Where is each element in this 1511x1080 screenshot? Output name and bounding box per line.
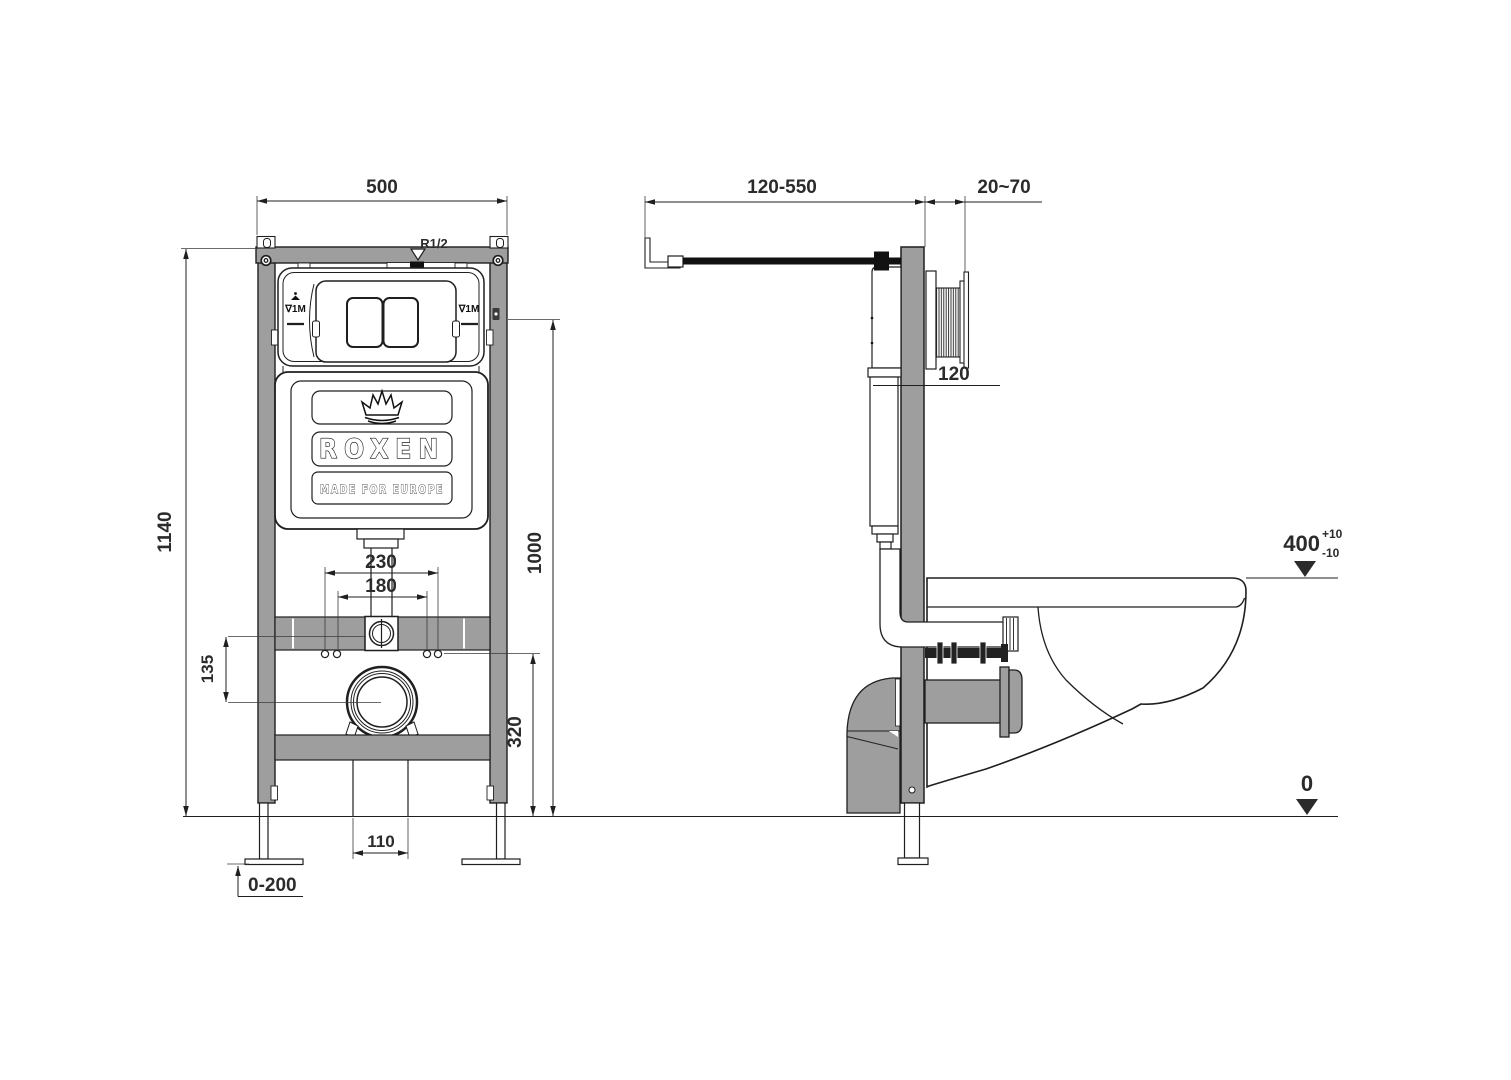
flush-button-small: [384, 298, 419, 347]
level-marker-400: 400 +10 -10: [1246, 527, 1343, 578]
brand-tagline-text: MADE FOR EUROPE: [320, 483, 444, 497]
foot-left: [245, 803, 303, 865]
meter-mark-label: ∇1M: [284, 304, 306, 315]
level-triangle-icon: [1294, 561, 1316, 577]
level-marker-0: 0: [1296, 771, 1318, 815]
technical-drawing-canvas: ∇1M ∇1M ROXEN MADE FOR EUROPE: [0, 0, 1511, 1080]
dim-label: 110: [367, 832, 394, 851]
frame-rail-side: [901, 247, 924, 803]
fixing-stud-holes: [321, 650, 441, 657]
plate-tab: [313, 321, 320, 337]
bracket-rod: [683, 258, 901, 265]
tank-neck-step: [364, 539, 398, 548]
dim-label: 120: [938, 364, 970, 385]
dim-label: 500: [366, 177, 398, 198]
dim-label: 0-200: [248, 875, 297, 896]
elbow-socket: [896, 679, 901, 726]
dim-wall-finish: 20~70: [925, 177, 1042, 272]
rail-clip: [487, 786, 494, 800]
level-triangle-icon: [1296, 799, 1318, 815]
thread-label: R1/2: [420, 236, 447, 251]
rail-hole: [909, 787, 915, 793]
rail-clip: [271, 786, 278, 800]
tank-neck: [357, 529, 404, 539]
screw-icon-right: [492, 255, 503, 266]
front-view: ∇1M ∇1M ROXEN MADE FOR EUROPE: [245, 237, 520, 865]
dim-label: 1000: [525, 532, 546, 574]
frame-top-bar: [256, 247, 508, 263]
meter-mark-label: ∇1M: [458, 304, 480, 315]
flush-elbow-fitting: [365, 617, 398, 651]
level-label: 0: [1301, 771, 1313, 796]
rail-clip: [487, 330, 494, 345]
cistern-tank-side: [868, 267, 901, 549]
dim-label: 180: [365, 576, 397, 597]
dim-label: 320: [505, 716, 526, 748]
tolerance-plus-label: +10: [1322, 527, 1343, 541]
hanger-tab-right: [490, 237, 508, 249]
level-dot-icon: [294, 292, 297, 295]
flush-access-sleeve: [926, 271, 969, 369]
level-label: 400: [1283, 531, 1320, 556]
foot-side: [898, 803, 928, 865]
lower-cross-member: [275, 735, 490, 760]
dim-bracket-range: 120-550: [645, 177, 925, 247]
bracket-clamp: [668, 256, 683, 267]
dim-label: 20~70: [977, 177, 1030, 198]
dim-outlet-width: 110: [353, 818, 408, 859]
dim-frame-height: 1140: [155, 249, 258, 817]
installation-frame-drawing: ∇1M ∇1M ROXEN MADE FOR EUROPE: [0, 0, 1511, 1080]
flush-plate-housing: [278, 268, 484, 366]
flush-button-large: [347, 298, 383, 347]
drain-elbow: [847, 678, 900, 813]
dim-label: 120-550: [747, 177, 817, 198]
dim-frame-width: 500: [257, 177, 507, 235]
hanger-tab-left: [257, 237, 275, 249]
screw-icon-left: [260, 255, 271, 266]
dim-label: 135: [198, 655, 217, 683]
foot-right: [462, 803, 520, 865]
rail-fastener-icon: [493, 308, 500, 320]
dim-foot-adjust: 0-200: [227, 864, 303, 897]
dim-label: 230: [365, 552, 397, 573]
side-view: 120: [645, 238, 1246, 865]
rail-clip: [272, 330, 279, 345]
upper-cross-member: [275, 617, 490, 651]
brand-logo-text: ROXEN: [319, 434, 445, 465]
wall-bracket: [645, 238, 901, 271]
tolerance-minus-label: -10: [1322, 546, 1340, 560]
bracket-block: [874, 252, 889, 271]
plate-tab: [453, 321, 460, 337]
dim-label: 1140: [155, 511, 176, 552]
